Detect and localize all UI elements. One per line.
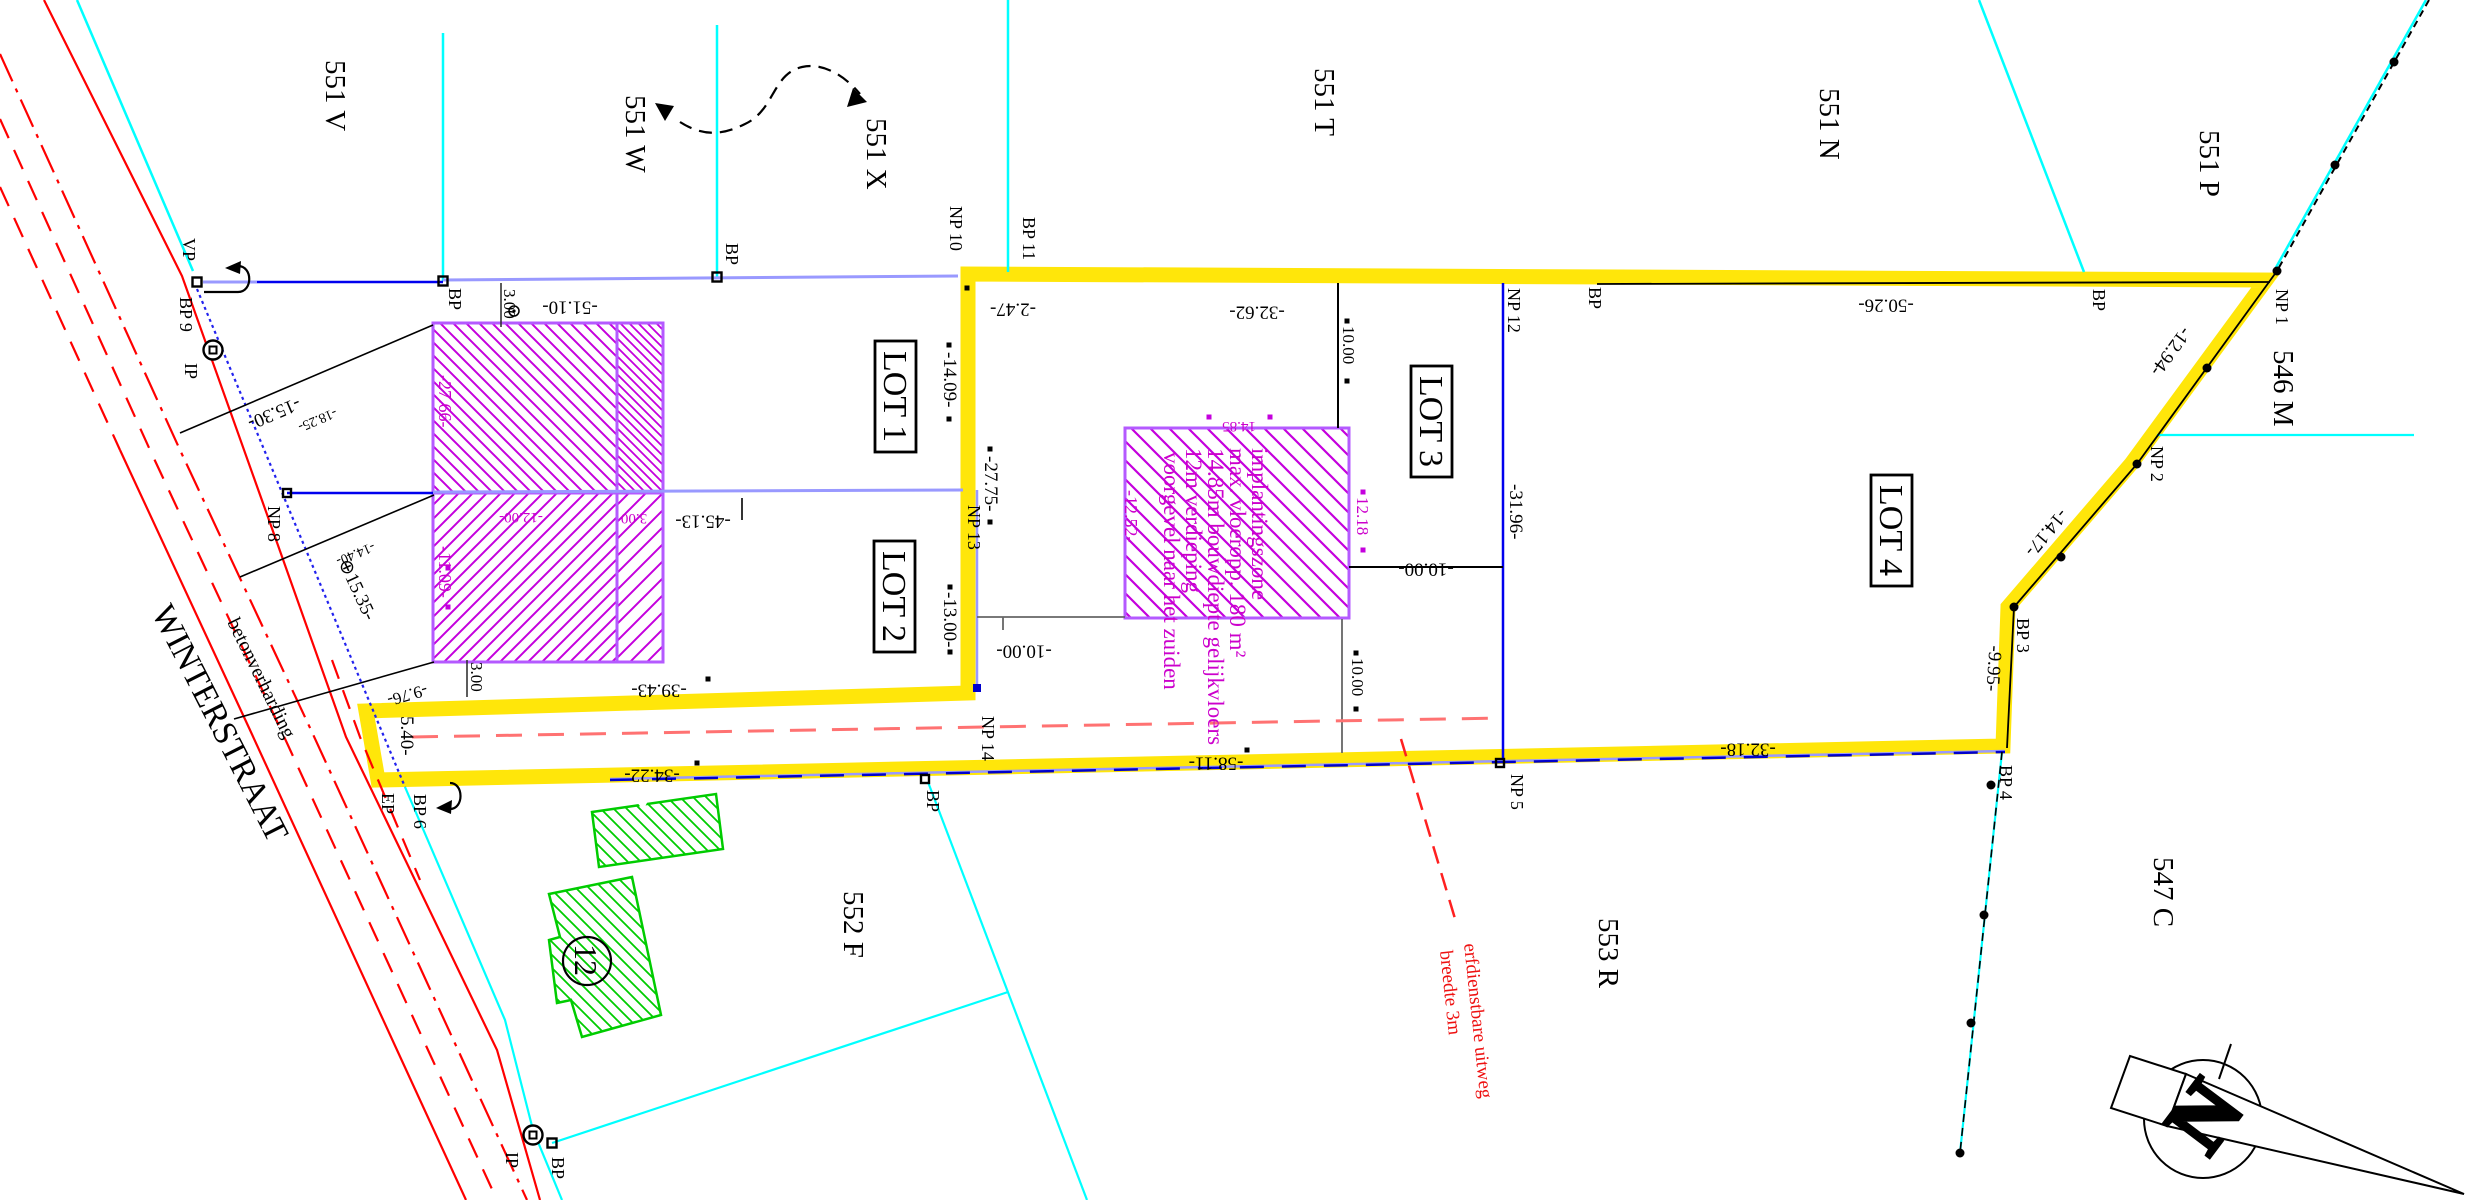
svg-text:-39.43-: -39.43- — [631, 679, 686, 700]
svg-text:-11.09-: -11.09- — [435, 546, 455, 598]
svg-text:-32.18-: -32.18- — [1720, 738, 1775, 759]
svg-text:NP 5: NP 5 — [1507, 774, 1527, 810]
svg-text:-31.96-: -31.96- — [1505, 484, 1526, 539]
svg-text:BP 4: BP 4 — [1996, 765, 2016, 800]
svg-text:IP: IP — [502, 1152, 522, 1168]
svg-text:-10.00-: -10.00- — [1398, 558, 1453, 579]
svg-text:3.00: 3.00 — [621, 510, 647, 526]
svg-text:-9.95-: -9.95- — [1981, 645, 2005, 692]
svg-text:BP 3: BP 3 — [2013, 618, 2033, 653]
svg-text:552 F: 552 F — [837, 891, 869, 958]
svg-text:BP 9: BP 9 — [176, 297, 196, 332]
svg-text:3.00: 3.00 — [467, 662, 486, 692]
svg-text:-45.13-: -45.13- — [675, 510, 730, 531]
svg-text:551 P: 551 P — [2193, 130, 2225, 197]
svg-text:-27.75-: -27.75- — [980, 456, 1001, 511]
svg-text:12: 12 — [568, 944, 604, 976]
svg-text:-58.11-: -58.11- — [1189, 752, 1244, 773]
svg-text:3.00: 3.00 — [500, 289, 519, 319]
svg-text:BP: BP — [2089, 289, 2109, 311]
svg-text:551 V: 551 V — [319, 60, 351, 131]
svg-text:VP: VP — [179, 238, 199, 261]
svg-text:voorgevel naar het zuiden: voorgevel naar het zuiden — [1159, 452, 1184, 690]
svg-text:NP 12: NP 12 — [1504, 288, 1524, 333]
svg-text:LOT 2: LOT 2 — [875, 551, 912, 642]
svg-text:LOT 1: LOT 1 — [876, 351, 913, 442]
svg-text:BP: BP — [1585, 287, 1605, 309]
svg-text:551 N: 551 N — [1813, 88, 1845, 160]
svg-text:10.00: 10.00 — [1348, 658, 1367, 696]
svg-text:LOT 4: LOT 4 — [1872, 485, 1909, 576]
svg-text:-50.26-: -50.26- — [1858, 294, 1913, 315]
svg-text:10.00: 10.00 — [1339, 326, 1358, 364]
svg-text:-12.52-: -12.52- — [1121, 490, 1141, 543]
svg-text:-2.47-: -2.47- — [990, 298, 1036, 319]
svg-text:-27.66-: -27.66- — [435, 375, 455, 428]
svg-text:553 R: 553 R — [1592, 918, 1624, 989]
svg-text:BP: BP — [722, 243, 742, 265]
svg-text:BP: BP — [548, 1157, 568, 1179]
svg-text:NP 10: NP 10 — [946, 206, 966, 251]
svg-text:5.40-: 5.40- — [396, 716, 417, 756]
svg-text:551 X: 551 X — [860, 118, 892, 190]
svg-text:NP 13: NP 13 — [964, 505, 984, 550]
svg-text:14.85: 14.85 — [1222, 418, 1256, 434]
svg-text:NP 14: NP 14 — [978, 716, 998, 761]
svg-text:12.18: 12.18 — [1353, 497, 1372, 535]
svg-text:551 W: 551 W — [619, 95, 651, 173]
svg-text:LOT 3: LOT 3 — [1412, 376, 1449, 467]
svg-text:BP 11: BP 11 — [1019, 217, 1039, 260]
svg-text:-10.00-: -10.00- — [996, 640, 1051, 661]
svg-text:BP 6: BP 6 — [410, 794, 430, 829]
svg-text:-51.10-: -51.10- — [542, 296, 597, 317]
svg-text:546 M: 546 M — [2267, 350, 2299, 427]
svg-text:551 T: 551 T — [1308, 68, 1340, 136]
svg-text:-12.00-: -12.00- — [499, 509, 543, 525]
svg-text:547 C: 547 C — [2147, 857, 2179, 927]
svg-text:-14.09-: -14.09- — [939, 352, 960, 407]
svg-text:EP: EP — [378, 793, 398, 814]
svg-text:BP: BP — [923, 790, 943, 812]
svg-text:-34.22-: -34.22- — [624, 764, 679, 785]
svg-text:-32.62-: -32.62- — [1229, 301, 1284, 322]
svg-text:NP 8: NP 8 — [264, 506, 284, 542]
svg-text:-13.00-: -13.00- — [939, 592, 960, 647]
svg-text:BP: BP — [445, 288, 465, 310]
svg-text:IP: IP — [181, 363, 201, 379]
svg-text:NP 2: NP 2 — [2147, 446, 2167, 482]
svg-text:NP 1: NP 1 — [2272, 289, 2292, 325]
